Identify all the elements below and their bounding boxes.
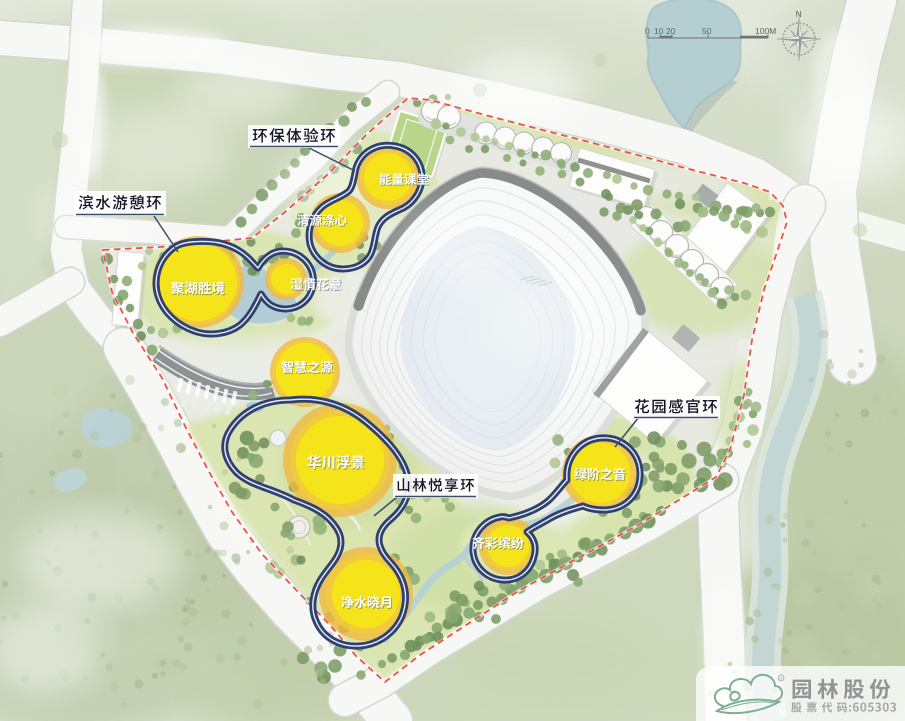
svg-text:10: 10 (654, 26, 664, 36)
svg-text:100M: 100M (755, 26, 776, 36)
svg-text:20: 20 (666, 26, 676, 36)
svg-text:0: 0 (645, 26, 650, 36)
svg-text:N: N (796, 10, 802, 19)
svg-text:50: 50 (702, 26, 712, 36)
